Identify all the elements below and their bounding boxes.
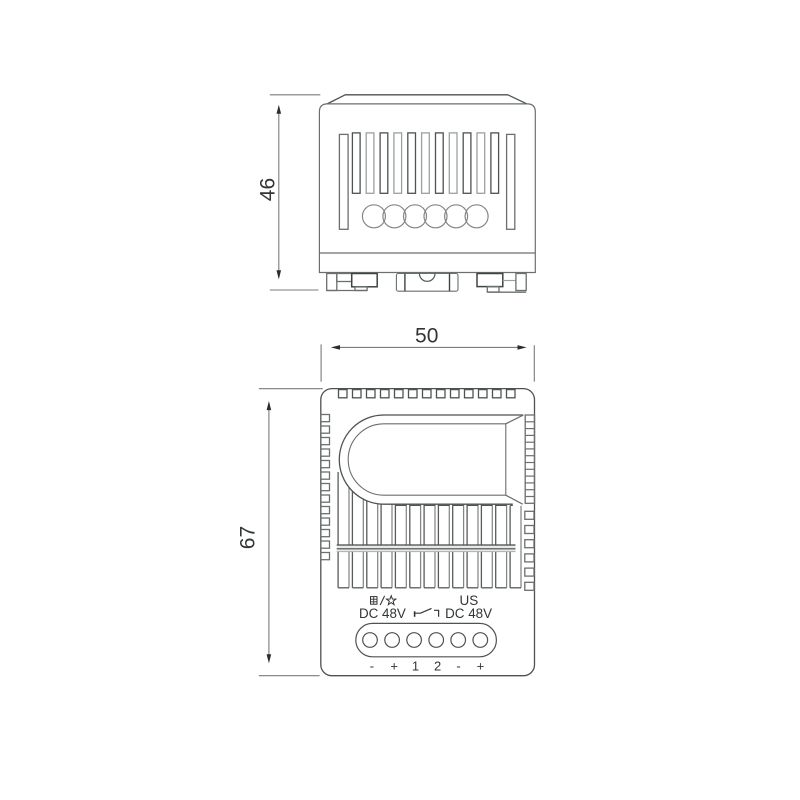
svg-text:-: - <box>456 659 460 674</box>
svg-text:+: + <box>477 659 485 674</box>
svg-text:-: - <box>370 659 374 674</box>
svg-text:1: 1 <box>412 659 419 674</box>
svg-text:DC 48V: DC 48V <box>359 606 406 621</box>
svg-text:50: 50 <box>415 325 438 348</box>
svg-text:46: 46 <box>256 178 279 201</box>
svg-text:67: 67 <box>237 526 260 549</box>
svg-text:2: 2 <box>434 659 441 674</box>
svg-text:+: + <box>390 659 398 674</box>
svg-text:DC 48V: DC 48V <box>445 606 492 621</box>
